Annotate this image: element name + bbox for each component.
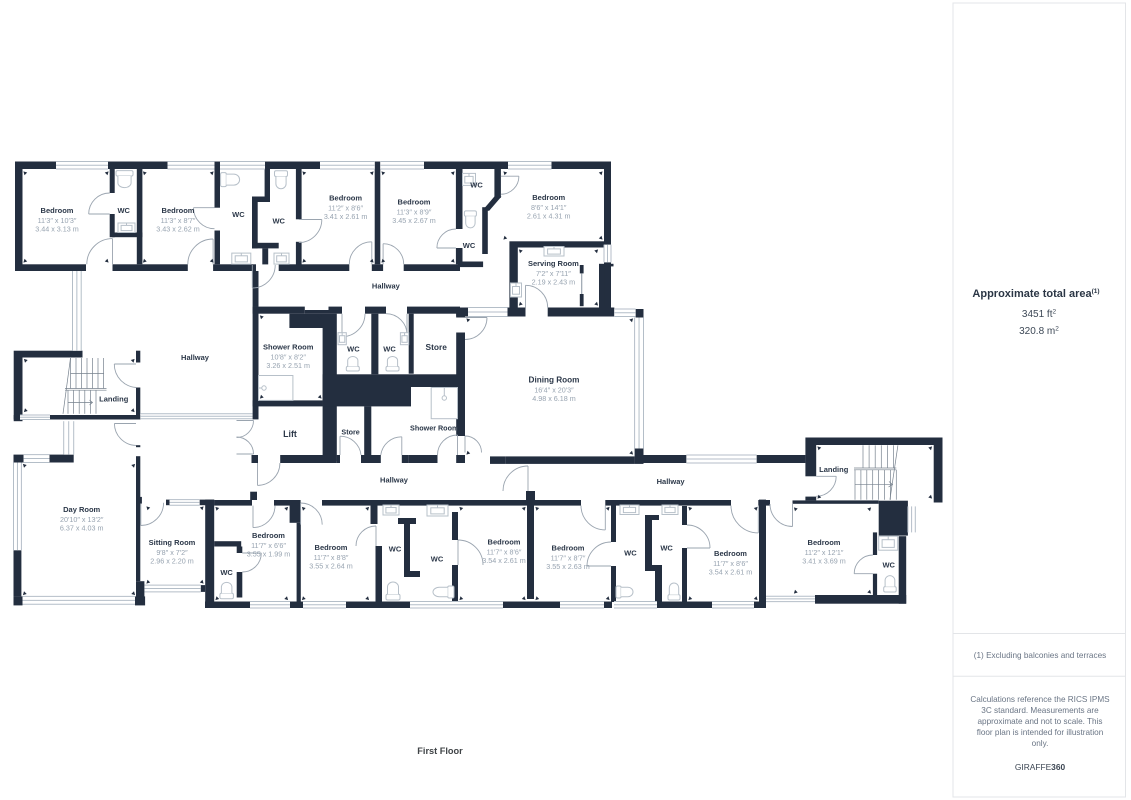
svg-text:3.55 x 1.99 m: 3.55 x 1.99 m xyxy=(247,549,291,558)
svg-text:Bedroom: Bedroom xyxy=(808,538,841,547)
svg-text:GIRAFFE360: GIRAFFE360 xyxy=(1015,762,1066,772)
svg-text:Approximate total area(1): Approximate total area(1) xyxy=(972,288,1099,300)
svg-text:WC: WC xyxy=(220,568,233,577)
svg-text:WC: WC xyxy=(117,206,130,215)
svg-text:Bedroom: Bedroom xyxy=(552,544,585,553)
svg-text:Sitting Room: Sitting Room xyxy=(149,538,196,547)
svg-text:WC: WC xyxy=(470,181,483,190)
svg-text:Lift: Lift xyxy=(283,429,297,439)
svg-text:WC: WC xyxy=(431,555,444,564)
svg-text:3.45 x 2.67 m: 3.45 x 2.67 m xyxy=(392,216,436,225)
svg-text:Bedroom: Bedroom xyxy=(329,194,362,203)
svg-text:Bedroom: Bedroom xyxy=(41,206,74,215)
svg-text:Hallway: Hallway xyxy=(380,476,409,485)
svg-text:Hallway: Hallway xyxy=(657,477,686,486)
svg-text:Calculations reference the RIC: Calculations reference the RICS IPMS xyxy=(970,695,1110,704)
svg-text:2.96 x 2.20 m: 2.96 x 2.20 m xyxy=(150,556,194,565)
svg-text:6.37 x 4.03 m: 6.37 x 4.03 m xyxy=(60,523,104,532)
svg-text:Dining Room: Dining Room xyxy=(529,376,580,385)
svg-text:WC: WC xyxy=(232,210,245,219)
svg-text:Store: Store xyxy=(341,428,359,437)
svg-text:WC: WC xyxy=(660,544,673,553)
svg-text:WC: WC xyxy=(463,241,476,250)
svg-text:only.: only. xyxy=(1032,739,1049,748)
svg-text:3.54 x 2.61 m: 3.54 x 2.61 m xyxy=(709,567,753,576)
svg-text:3451 ft2: 3451 ft2 xyxy=(1022,309,1057,321)
svg-text:Store: Store xyxy=(425,342,447,352)
svg-text:Bedroom: Bedroom xyxy=(532,193,565,202)
svg-text:Landing: Landing xyxy=(819,465,849,474)
svg-text:3.54 x 2.61 m: 3.54 x 2.61 m xyxy=(482,556,526,565)
svg-text:3.43 x 2.62 m: 3.43 x 2.62 m xyxy=(156,224,200,233)
svg-text:approximate and not to scale.: approximate and not to scale. This xyxy=(977,717,1102,726)
svg-text:3.55 x 2.63 m: 3.55 x 2.63 m xyxy=(546,562,590,571)
svg-text:Bedroom: Bedroom xyxy=(162,206,195,215)
svg-text:Bedroom: Bedroom xyxy=(252,531,285,540)
svg-text:3.44 x 3.13 m: 3.44 x 3.13 m xyxy=(35,224,79,233)
svg-text:Day Room: Day Room xyxy=(63,505,100,514)
svg-text:Bedroom: Bedroom xyxy=(398,198,431,207)
svg-text:WC: WC xyxy=(624,549,637,558)
svg-text:(1) Excluding balconies and te: (1) Excluding balconies and terraces xyxy=(974,651,1106,660)
svg-text:3.41 x 3.69 m: 3.41 x 3.69 m xyxy=(802,556,846,565)
svg-text:Bedroom: Bedroom xyxy=(714,549,747,558)
svg-text:2.19 x 2.43 m: 2.19 x 2.43 m xyxy=(532,277,576,286)
svg-text:Bedroom: Bedroom xyxy=(488,538,521,547)
svg-text:3.55 x 2.64 m: 3.55 x 2.64 m xyxy=(309,561,353,570)
svg-text:WC: WC xyxy=(389,545,402,554)
svg-text:Shower Room: Shower Room xyxy=(263,343,314,352)
svg-text:4.98 x 6.18 m: 4.98 x 6.18 m xyxy=(532,394,576,403)
svg-text:Hallway: Hallway xyxy=(181,353,210,362)
svg-text:Bedroom: Bedroom xyxy=(315,543,348,552)
svg-text:Serving Room: Serving Room xyxy=(528,259,579,268)
svg-text:WC: WC xyxy=(383,345,396,354)
svg-text:Hallway: Hallway xyxy=(372,282,401,291)
svg-text:3C standard. Measurements are: 3C standard. Measurements are xyxy=(981,706,1099,715)
svg-text:First Floor: First Floor xyxy=(417,746,463,756)
svg-text:WC: WC xyxy=(347,345,360,354)
svg-text:2.61 x 4.31 m: 2.61 x 4.31 m xyxy=(527,211,571,220)
svg-text:320.8 m2: 320.8 m2 xyxy=(1019,326,1059,338)
svg-text:3.41 x 2.61 m: 3.41 x 2.61 m xyxy=(324,212,368,221)
svg-text:WC: WC xyxy=(882,561,895,570)
svg-text:Landing: Landing xyxy=(99,395,129,404)
svg-text:WC: WC xyxy=(272,217,285,226)
svg-text:floor plan is intended for ill: floor plan is intended for illustration xyxy=(977,728,1104,737)
svg-text:Shower Room: Shower Room xyxy=(410,424,458,433)
svg-text:3.26 x 2.51 m: 3.26 x 2.51 m xyxy=(266,361,310,370)
